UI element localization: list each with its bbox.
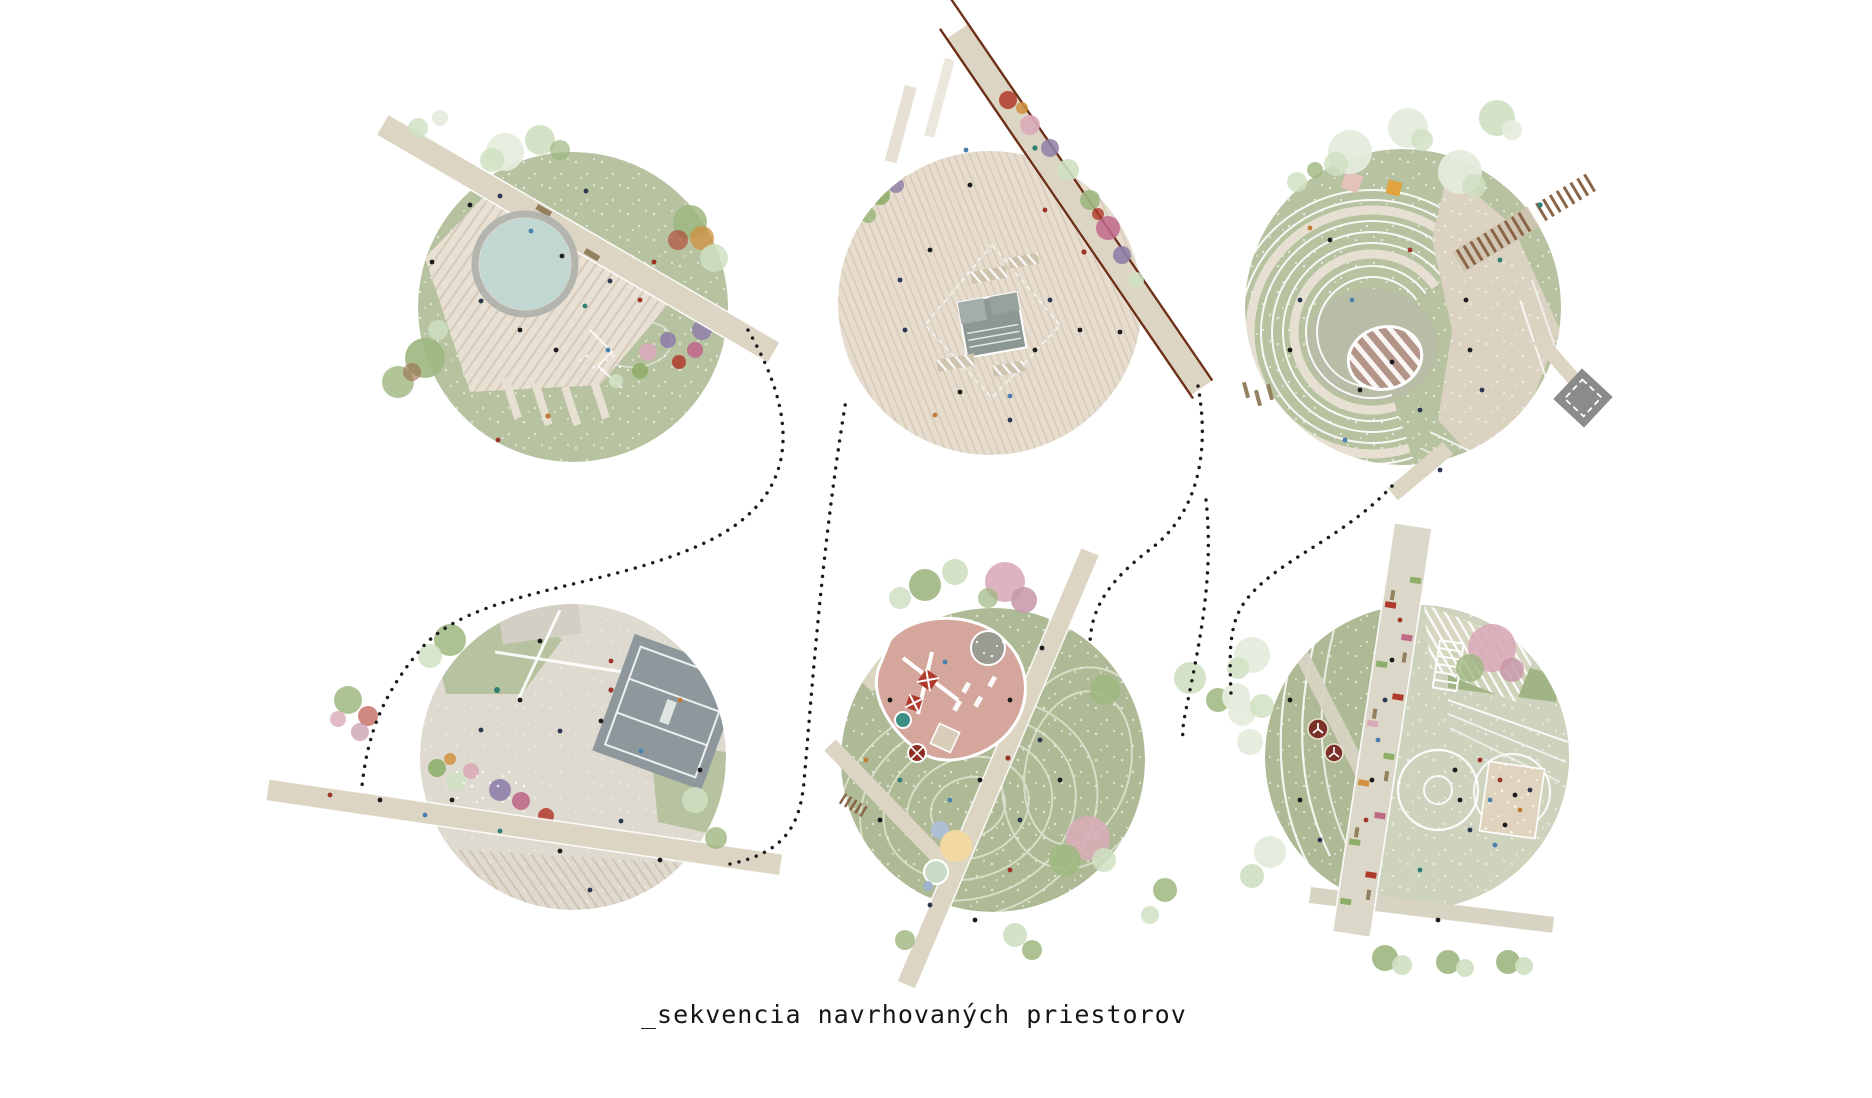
central-pavilion [958,292,1027,358]
event-plaza-ground [420,600,744,914]
vignette-event-plaza [266,600,782,914]
board-caption: _sekvencia navrhovaných priestorov [641,1000,1187,1029]
spinner [895,712,911,728]
vignette-pool-plaza [377,110,780,462]
vignette-promenade-park [1222,524,1580,977]
gray-platform [1553,368,1612,427]
stub-paths [885,58,955,163]
presentation-board: _sekvencia navrhovaných priestorov [0,0,1872,1098]
pool [475,214,575,314]
vignette-playground-meadow [807,548,1256,988]
vignette-tram-square [838,0,1215,455]
vignette-amphitheatre [1193,100,1613,511]
tram-square-ground [838,110,1142,455]
site-plan-diagram [0,0,1872,1098]
route-2-to-3 [730,400,846,864]
benches-outside [1242,382,1274,406]
route-3-to-5 [1090,386,1202,646]
route-3-to-6 [1183,500,1209,740]
